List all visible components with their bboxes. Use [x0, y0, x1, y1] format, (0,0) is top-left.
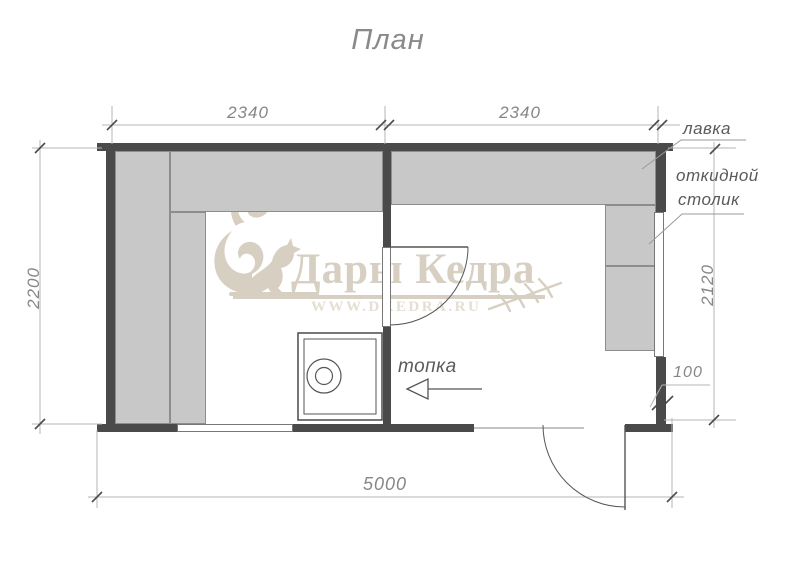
extension-lines: [32, 106, 736, 508]
dim-top-right-value: 2340: [480, 103, 560, 123]
dim-right-value: 2120: [698, 254, 718, 316]
floor-plan-canvas: План Дары Кедра WWW.DKEDRA.RU: [0, 0, 800, 565]
folding-table-label-line1: откидной: [676, 164, 759, 188]
interior-door: [390, 247, 468, 325]
dimension-lines: [40, 125, 714, 497]
dim-wall-offset-value: 100: [666, 364, 710, 382]
stove-inner-frame: [304, 339, 376, 414]
dim-leader-100: [650, 385, 662, 407]
furnace-arrow-icon: [407, 379, 482, 399]
bench-label: лавка: [683, 117, 731, 141]
furnace-label: топка: [398, 355, 457, 379]
stove: [298, 333, 382, 420]
interior-door-arc: [390, 247, 468, 325]
folding-table-label-line2: столик: [678, 188, 740, 212]
leader-folding-table-label: [649, 214, 744, 244]
exterior-door-arc: [543, 425, 625, 507]
dim-top-left-value: 2340: [208, 103, 288, 123]
dim-bottom-value: 5000: [345, 474, 425, 495]
tick-marks: [35, 120, 720, 502]
dim-left-value: 2200: [24, 257, 44, 319]
